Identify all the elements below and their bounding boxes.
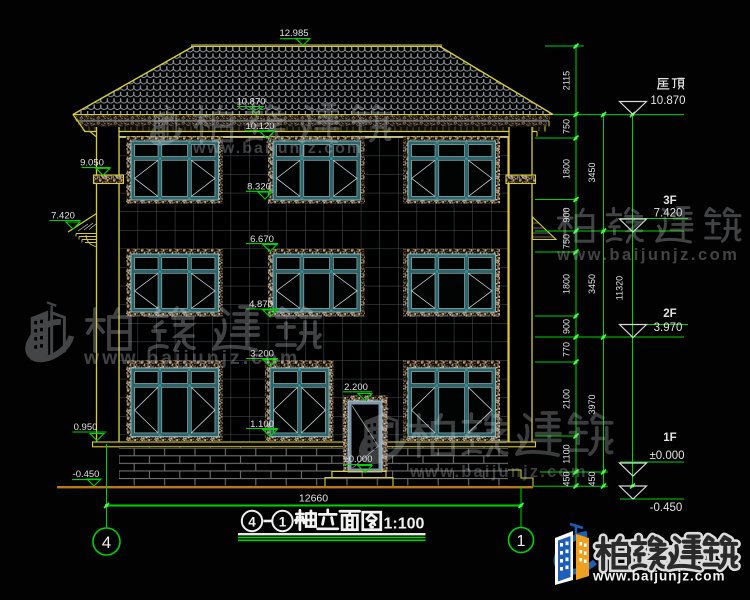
svg-text:12660: 12660 <box>299 493 328 505</box>
svg-text:12.985: 12.985 <box>279 28 308 39</box>
svg-text:-0.450: -0.450 <box>650 502 683 514</box>
svg-text:10.870: 10.870 <box>236 97 265 108</box>
svg-text:1800: 1800 <box>562 159 572 179</box>
svg-text:2115: 2115 <box>562 71 572 90</box>
svg-text:www.baijunjz.com: www.baijunjz.com <box>409 463 588 481</box>
svg-text:3450: 3450 <box>587 274 597 294</box>
svg-text:3.970: 3.970 <box>654 322 683 334</box>
svg-text:www.baijunjz.com: www.baijunjz.com <box>592 569 726 584</box>
svg-text:3970: 3970 <box>587 394 597 414</box>
svg-text:900: 900 <box>562 319 572 334</box>
svg-text:2100: 2100 <box>562 389 572 409</box>
svg-text:1:100: 1:100 <box>384 516 425 533</box>
svg-text:0.950: 0.950 <box>74 422 98 433</box>
svg-text:www.baijunjz.com: www.baijunjz.com <box>192 140 363 157</box>
svg-text:450: 450 <box>587 471 597 486</box>
svg-text:770: 770 <box>562 342 572 357</box>
svg-text:750: 750 <box>562 119 572 134</box>
svg-text:11320: 11320 <box>615 276 625 300</box>
svg-text:www.baijunjz.com: www.baijunjz.com <box>83 347 300 369</box>
svg-text:4: 4 <box>248 515 256 530</box>
svg-text:1F: 1F <box>663 432 676 444</box>
svg-text:4: 4 <box>102 533 111 552</box>
svg-text:1100: 1100 <box>562 444 572 463</box>
svg-text:3450: 3450 <box>587 162 597 182</box>
svg-text:3F: 3F <box>663 195 676 207</box>
svg-text:±0.000: ±0.000 <box>649 450 684 462</box>
svg-text:2F: 2F <box>663 308 676 320</box>
svg-text:10.870: 10.870 <box>650 95 685 107</box>
svg-text:1: 1 <box>279 515 287 530</box>
svg-text:www.baijunjz.com: www.baijunjz.com <box>556 246 739 264</box>
svg-text:9.050: 9.050 <box>80 158 104 169</box>
svg-text:1800: 1800 <box>562 274 572 294</box>
svg-text:1: 1 <box>517 533 526 550</box>
